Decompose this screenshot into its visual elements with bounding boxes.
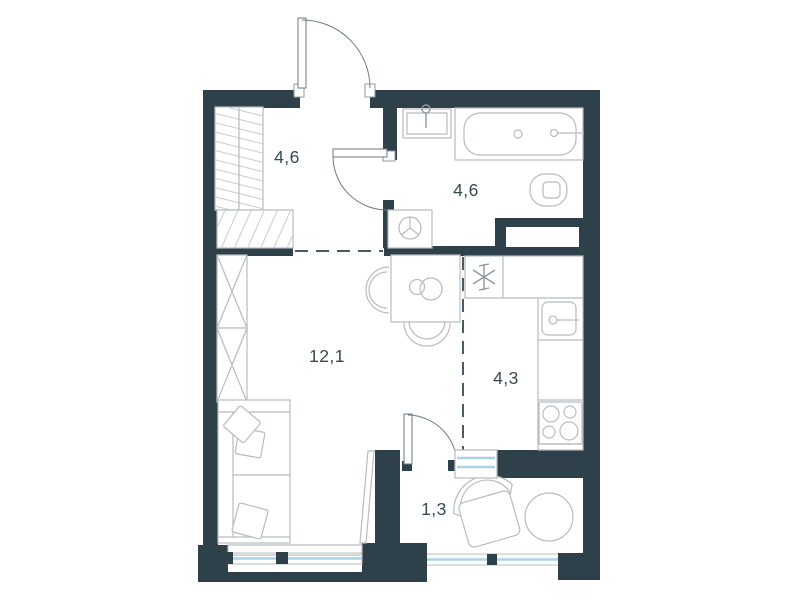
bathroom-area-label: 4,6 — [453, 180, 479, 200]
kitchen-fixtures — [465, 256, 583, 450]
bathroom-door-leaf — [333, 149, 387, 157]
bathtub — [455, 108, 583, 160]
dining-chair-bottom — [404, 321, 450, 346]
armchair-seat — [458, 490, 522, 549]
ventilation-shaft-inner — [506, 227, 579, 247]
dining-table — [391, 255, 460, 322]
balcony-door-swing-arc — [408, 415, 457, 465]
dining-chair-left — [366, 267, 389, 313]
entry-mat-hatch — [217, 210, 293, 248]
living-room-area-label: 12,1 — [309, 346, 345, 366]
kitchen-area-label: 4,3 — [493, 368, 519, 388]
hallway-area-label: 4,6 — [274, 147, 300, 167]
armchair — [446, 469, 526, 550]
bathroom-door-swing-arc — [333, 155, 387, 210]
floor-plan-drawing: 4,6 4,6 12,1 4,3 1,3 — [0, 0, 800, 600]
living-window-mullion-2 — [276, 552, 288, 564]
wall-kitchen-balcony — [497, 450, 588, 478]
wall-right — [583, 90, 600, 580]
toilet — [530, 174, 567, 206]
hallway-fixtures — [215, 18, 375, 248]
entrance-door-swing-arc — [302, 20, 370, 88]
wall-strip-bottom — [198, 572, 427, 582]
kitchen-balcony-window — [455, 450, 497, 478]
washing-machine — [388, 210, 432, 248]
wall-top-right — [370, 90, 600, 108]
balcony-door-leaf — [404, 414, 412, 464]
open-window-sash — [360, 451, 374, 543]
entrance-door-leaf — [298, 18, 306, 88]
round-table — [525, 493, 573, 541]
balcony-area-label: 1,3 — [421, 499, 447, 519]
living-window-mullion-1 — [224, 552, 233, 564]
wall-pier-balcony-right — [558, 553, 592, 580]
floor-plan: 4,6 4,6 12,1 4,3 1,3 — [0, 0, 800, 600]
balcony-window-mullion — [487, 554, 497, 565]
